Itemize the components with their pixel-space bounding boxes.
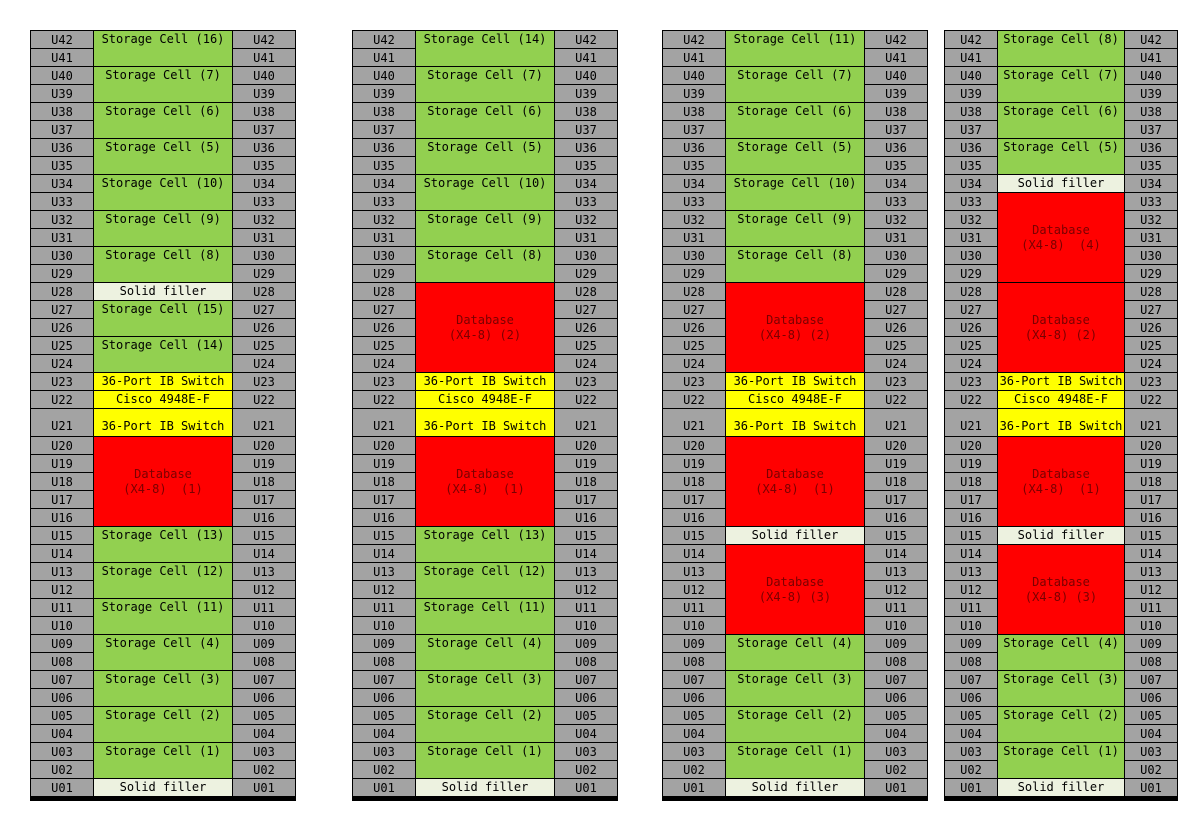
u-label-left: U01 [945,779,997,796]
block-storage: Storage Cell (1) [726,743,864,778]
u-label-left: U39 [31,85,93,102]
block-storage: Storage Cell (4) [94,635,232,670]
u-label-right: U28 [233,283,295,300]
u-label-left: U03 [31,743,93,760]
rack-2: U42U42U41U41U40U40U39U39U38U38U37U37U36U… [352,30,618,801]
u-label-right: U29 [233,265,295,282]
u-label-right: U24 [865,355,927,372]
block-database: Database(X4-8) (1) [726,437,864,526]
u-label-right: U29 [865,265,927,282]
u-label-left: U42 [945,31,997,48]
block-label: Solid filler [752,528,839,543]
u-label-right: U42 [233,31,295,48]
u-label-left: U25 [945,337,997,354]
u-label-right: U19 [555,455,617,472]
u-label-right: U37 [555,121,617,138]
u-label-left: U22 [31,391,93,408]
u-label-right: U09 [555,635,617,652]
u-label-left: U07 [31,671,93,688]
block-storage: Storage Cell (12) [416,563,554,598]
block-sublabel: (X4-8) (1) [445,482,524,497]
u-label-right: U37 [233,121,295,138]
u-label-right: U01 [555,779,617,796]
u-label-left: U29 [31,265,93,282]
u-label-left: U12 [353,581,415,598]
block-label: 36-Port IB Switch [102,419,225,434]
u-label-right: U03 [233,743,295,760]
block-sublabel: (X4-8) (3) [1025,590,1097,605]
block-switch: 36-Port IB Switch [94,373,232,390]
u-label-left: U15 [945,527,997,544]
u-label-left: U22 [353,391,415,408]
u-label-left: U16 [353,509,415,526]
block-sublabel: (X4-8) (2) [1025,328,1097,343]
u-label-right: U17 [555,491,617,508]
u-label-right: U08 [233,653,295,670]
u-label-right: U20 [555,437,617,454]
block-sublabel: (X4-8) (2) [449,328,521,343]
block-label: Storage Cell (3) [1003,672,1119,687]
u-label-left: U10 [353,617,415,634]
racks-container: U42U42U41U41U40U40U39U39U38U38U37U37U36U… [0,0,1190,816]
u-label-right: U35 [1125,157,1177,174]
u-label-left: U24 [945,355,997,372]
block-storage: Storage Cell (15) [94,301,232,336]
u-label-right: U39 [555,85,617,102]
u-label-left: U38 [353,103,415,120]
u-label-right: U33 [555,193,617,210]
block-label: Storage Cell (5) [105,140,221,155]
u-label-left: U14 [31,545,93,562]
u-label-left: U18 [945,473,997,490]
block-label: Database [1032,467,1090,482]
u-label-left: U30 [353,247,415,264]
u-label-left: U40 [353,67,415,84]
block-storage: Storage Cell (3) [726,671,864,706]
u-label-left: U11 [663,599,725,616]
u-label-right: U01 [865,779,927,796]
u-label-left: U39 [353,85,415,102]
u-label-left: U19 [353,455,415,472]
block-storage: Storage Cell (8) [416,247,554,282]
u-label-right: U35 [555,157,617,174]
u-label-left: U28 [31,283,93,300]
u-label-right: U24 [1125,355,1177,372]
u-label-left: U10 [31,617,93,634]
block-label: Storage Cell (4) [737,636,853,651]
block-label: Storage Cell (16) [102,32,225,47]
u-label-right: U10 [1125,617,1177,634]
u-label-right: U20 [233,437,295,454]
block-filler: Solid filler [94,779,232,796]
u-label-right: U13 [233,563,295,580]
u-label-left: U13 [945,563,997,580]
block-label: Storage Cell (2) [427,708,543,723]
u-label-left: U17 [945,491,997,508]
u-label-right: U12 [1125,581,1177,598]
u-label-right: U18 [1125,473,1177,490]
u-label-left: U11 [353,599,415,616]
u-label-left: U40 [945,67,997,84]
u-label-right: U19 [233,455,295,472]
u-label-left: U32 [353,211,415,228]
u-label-right: U09 [1125,635,1177,652]
u-label-left: U25 [31,337,93,354]
u-label-left: U33 [31,193,93,210]
block-storage: Storage Cell (10) [726,175,864,210]
u-label-left: U10 [663,617,725,634]
block-label: 36-Port IB Switch [1000,419,1123,434]
u-label-left: U06 [663,689,725,706]
u-label-right: U41 [555,49,617,66]
block-cisco: Cisco 4948E-F [416,391,554,408]
u-label-left: U09 [945,635,997,652]
u-label-left: U26 [31,319,93,336]
u-label-right: U12 [555,581,617,598]
u-label-right: U28 [865,283,927,300]
u-label-right: U27 [233,301,295,318]
u-label-left: U35 [945,157,997,174]
u-label-left: U29 [945,265,997,282]
block-label: Cisco 4948E-F [438,392,532,407]
u-label-right: U38 [555,103,617,120]
u-label-left: U19 [31,455,93,472]
u-label-right: U36 [1125,139,1177,156]
block-filler: Solid filler [998,527,1124,544]
u-label-right: U15 [233,527,295,544]
block-label: Storage Cell (4) [1003,636,1119,651]
block-sublabel: (X4-8) (1) [1021,482,1100,497]
block-filler: Solid filler [94,283,232,300]
block-storage: Storage Cell (11) [726,31,864,66]
u-label-left: U23 [31,373,93,390]
block-label: Storage Cell (4) [427,636,543,651]
u-label-left: U34 [31,175,93,192]
u-label-left: U17 [31,491,93,508]
u-label-left: U14 [945,545,997,562]
u-label-right: U02 [1125,761,1177,778]
u-label-left: U35 [31,157,93,174]
u-label-left: U12 [945,581,997,598]
u-label-right: U04 [1125,725,1177,742]
u-label-right: U36 [233,139,295,156]
u-label-right: U23 [1125,373,1177,390]
u-label-right: U31 [233,229,295,246]
u-label-right: U38 [865,103,927,120]
u-label-left: U02 [945,761,997,778]
u-label-left: U21 [31,409,93,436]
block-label: Storage Cell (5) [737,140,853,155]
u-label-left: U39 [945,85,997,102]
u-label-right: U11 [233,599,295,616]
block-label: Storage Cell (5) [427,140,543,155]
u-label-left: U01 [31,779,93,796]
u-label-left: U25 [353,337,415,354]
u-label-right: U30 [555,247,617,264]
block-label: Database [1032,575,1090,590]
u-label-right: U22 [865,391,927,408]
u-label-left: U31 [945,229,997,246]
u-label-right: U22 [233,391,295,408]
block-label: Storage Cell (6) [737,104,853,119]
block-storage: Storage Cell (4) [726,635,864,670]
u-label-left: U11 [945,599,997,616]
u-label-right: U39 [865,85,927,102]
u-label-left: U23 [353,373,415,390]
u-label-left: U18 [31,473,93,490]
u-label-left: U21 [945,409,997,436]
u-label-right: U09 [233,635,295,652]
block-label: Storage Cell (8) [105,248,221,263]
block-database: Database(X4-8) (2) [416,283,554,372]
u-label-left: U33 [353,193,415,210]
u-label-right: U40 [865,67,927,84]
block-label: Storage Cell (3) [737,672,853,687]
u-label-left: U31 [663,229,725,246]
block-switch: 36-Port IB Switch [998,409,1124,436]
u-label-right: U08 [555,653,617,670]
rack-3: U42U42U41U41U40U40U39U39U38U38U37U37U36U… [662,30,928,801]
block-label: 36-Port IB Switch [734,374,857,389]
u-label-right: U13 [1125,563,1177,580]
u-label-right: U35 [865,157,927,174]
block-database: Database(X4-8) (2) [998,283,1124,372]
block-label: Storage Cell (2) [105,708,221,723]
block-storage: Storage Cell (13) [416,527,554,562]
block-storage: Storage Cell (1) [94,743,232,778]
block-storage: Storage Cell (2) [416,707,554,742]
u-label-right: U11 [1125,599,1177,616]
u-label-right: U32 [865,211,927,228]
block-storage: Storage Cell (10) [94,175,232,210]
u-label-left: U07 [353,671,415,688]
block-storage: Storage Cell (4) [416,635,554,670]
block-storage: Storage Cell (6) [94,103,232,138]
u-label-left: U03 [353,743,415,760]
u-label-right: U39 [1125,85,1177,102]
u-label-left: U40 [31,67,93,84]
u-label-left: U13 [663,563,725,580]
block-switch: 36-Port IB Switch [726,373,864,390]
u-label-right: U17 [865,491,927,508]
u-label-left: U19 [945,455,997,472]
u-label-right: U19 [865,455,927,472]
block-storage: Storage Cell (3) [94,671,232,706]
u-label-right: U34 [865,175,927,192]
block-storage: Storage Cell (16) [94,31,232,66]
u-label-right: U21 [555,409,617,436]
block-label: Storage Cell (3) [427,672,543,687]
u-label-left: U09 [663,635,725,652]
block-sublabel: (X4-8) (1) [123,482,202,497]
u-label-right: U34 [555,175,617,192]
u-label-left: U20 [663,437,725,454]
u-label-left: U08 [31,653,93,670]
u-label-right: U16 [865,509,927,526]
block-label: 36-Port IB Switch [424,419,547,434]
block-label: Storage Cell (1) [105,744,221,759]
u-label-left: U09 [31,635,93,652]
block-label: Database [766,467,824,482]
block-database: Database(X4-8) (1) [416,437,554,526]
block-label: Solid filler [442,780,529,795]
block-label: Storage Cell (13) [102,528,225,543]
u-label-left: U07 [945,671,997,688]
u-label-right: U27 [1125,301,1177,318]
block-label: Database [1032,223,1090,238]
block-label: Storage Cell (11) [734,32,857,47]
u-label-left: U34 [945,175,997,192]
u-label-right: U05 [1125,707,1177,724]
u-label-left: U14 [663,545,725,562]
u-label-right: U41 [1125,49,1177,66]
block-switch: 36-Port IB Switch [94,409,232,436]
block-storage: Storage Cell (7) [998,67,1124,102]
u-label-right: U05 [233,707,295,724]
block-label: Storage Cell (10) [734,176,857,191]
u-label-right: U29 [555,265,617,282]
block-label: Cisco 4948E-F [1014,392,1108,407]
block-label: Database [1032,313,1090,328]
u-label-right: U42 [865,31,927,48]
block-label: Storage Cell (7) [737,68,853,83]
u-label-left: U17 [353,491,415,508]
block-label: Storage Cell (2) [737,708,853,723]
u-label-left: U22 [663,391,725,408]
u-label-right: U13 [555,563,617,580]
u-label-left: U12 [31,581,93,598]
u-label-left: U18 [353,473,415,490]
u-label-right: U10 [865,617,927,634]
u-label-right: U37 [1125,121,1177,138]
u-label-right: U25 [865,337,927,354]
block-label: Solid filler [752,780,839,795]
block-label: Solid filler [1018,528,1105,543]
u-label-left: U30 [31,247,93,264]
block-storage: Storage Cell (9) [416,211,554,246]
block-switch: 36-Port IB Switch [416,409,554,436]
block-storage: Storage Cell (5) [998,139,1124,174]
u-label-right: U18 [233,473,295,490]
block-label: Solid filler [120,284,207,299]
u-label-left: U29 [353,265,415,282]
u-label-right: U11 [555,599,617,616]
u-label-right: U04 [233,725,295,742]
u-label-right: U18 [555,473,617,490]
block-label: Solid filler [120,780,207,795]
u-label-right: U20 [1125,437,1177,454]
u-label-left: U05 [945,707,997,724]
block-label: Storage Cell (6) [1003,104,1119,119]
u-label-left: U23 [663,373,725,390]
u-label-left: U36 [31,139,93,156]
u-label-right: U21 [865,409,927,436]
u-label-left: U37 [945,121,997,138]
block-cisco: Cisco 4948E-F [94,391,232,408]
block-filler: Solid filler [416,779,554,796]
u-label-left: U22 [945,391,997,408]
u-label-right: U16 [1125,509,1177,526]
u-label-left: U14 [353,545,415,562]
u-label-left: U40 [663,67,725,84]
u-label-right: U12 [233,581,295,598]
block-storage: Storage Cell (10) [416,175,554,210]
u-label-left: U36 [945,139,997,156]
block-sublabel: (X4-8) (2) [759,328,831,343]
page: { "colors": { "storage": "#92D050", "dat… [0,0,1190,816]
u-label-left: U26 [663,319,725,336]
u-label-right: U05 [555,707,617,724]
u-label-right: U17 [1125,491,1177,508]
u-label-left: U26 [945,319,997,336]
u-label-right: U25 [233,337,295,354]
u-label-left: U04 [353,725,415,742]
block-label: Database [456,313,514,328]
block-label: Storage Cell (7) [427,68,543,83]
block-switch: 36-Port IB Switch [726,409,864,436]
block-filler: Solid filler [998,779,1124,796]
u-label-right: U37 [865,121,927,138]
block-label: Storage Cell (12) [424,564,547,579]
u-label-right: U18 [865,473,927,490]
block-label: Storage Cell (6) [105,104,221,119]
block-label: Storage Cell (8) [1003,32,1119,47]
u-label-left: U32 [945,211,997,228]
u-label-right: U06 [233,689,295,706]
block-cisco: Cisco 4948E-F [998,391,1124,408]
block-sublabel: (X4-8) (4) [1021,238,1100,253]
block-switch: 36-Port IB Switch [998,373,1124,390]
u-label-right: U09 [865,635,927,652]
u-label-left: U05 [31,707,93,724]
u-label-right: U40 [555,67,617,84]
u-label-right: U01 [1125,779,1177,796]
block-database: Database(X4-8) (3) [726,545,864,634]
u-label-right: U27 [555,301,617,318]
u-label-right: U30 [233,247,295,264]
u-label-left: U28 [353,283,415,300]
u-label-right: U07 [233,671,295,688]
u-label-left: U27 [31,301,93,318]
u-label-left: U24 [353,355,415,372]
block-storage: Storage Cell (14) [416,31,554,66]
u-label-right: U36 [865,139,927,156]
u-label-left: U20 [31,437,93,454]
u-label-left: U10 [945,617,997,634]
u-label-right: U02 [865,761,927,778]
block-storage: Storage Cell (2) [998,707,1124,742]
block-storage: Storage Cell (14) [94,337,232,372]
block-storage: Storage Cell (3) [416,671,554,706]
u-label-right: U21 [233,409,295,436]
block-database: Database(X4-8) (4) [998,193,1124,282]
block-storage: Storage Cell (1) [416,743,554,778]
u-label-right: U41 [233,49,295,66]
u-label-right: U28 [1125,283,1177,300]
u-label-left: U42 [663,31,725,48]
u-label-left: U34 [663,175,725,192]
u-label-right: U14 [555,545,617,562]
block-database: Database(X4-8) (1) [998,437,1124,526]
block-database: Database(X4-8) (1) [94,437,232,526]
u-label-right: U26 [865,319,927,336]
block-label: Storage Cell (14) [102,338,225,353]
block-switch: 36-Port IB Switch [416,373,554,390]
block-filler: Solid filler [998,175,1124,192]
u-label-left: U25 [663,337,725,354]
u-label-left: U37 [663,121,725,138]
u-label-right: U31 [1125,229,1177,246]
